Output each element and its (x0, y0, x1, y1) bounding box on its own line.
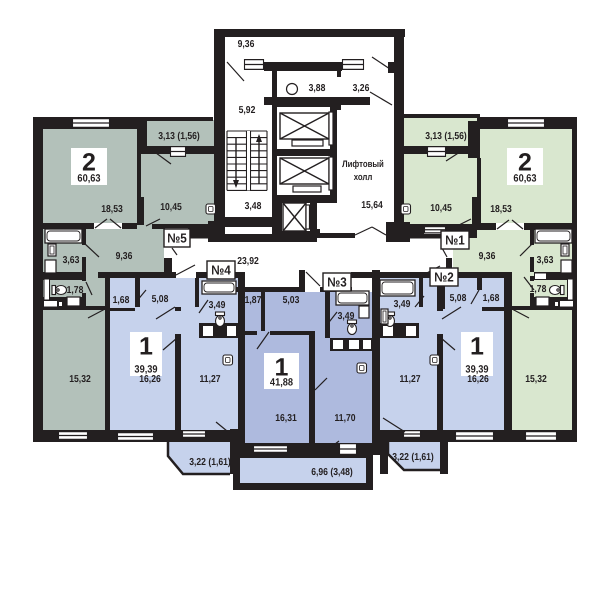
svg-text:16,31: 16,31 (275, 413, 297, 424)
svg-text:1,68: 1,68 (483, 293, 500, 304)
svg-text:3,63: 3,63 (63, 255, 80, 266)
svg-text:1: 1 (139, 333, 153, 361)
svg-text:№2: №2 (434, 270, 454, 285)
svg-text:3,13 (1,56): 3,13 (1,56) (158, 131, 200, 142)
svg-text:11,27: 11,27 (399, 374, 420, 385)
svg-text:5,92: 5,92 (239, 105, 256, 116)
svg-text:3,22 (1,61): 3,22 (1,61) (189, 457, 231, 468)
svg-text:9,36: 9,36 (479, 251, 496, 262)
svg-text:3,22 (1,61): 3,22 (1,61) (392, 452, 434, 463)
svg-text:6,96 (3,48): 6,96 (3,48) (311, 467, 353, 478)
svg-text:1,78: 1,78 (530, 284, 547, 295)
svg-text:9,36: 9,36 (116, 251, 133, 262)
svg-text:60,63: 60,63 (513, 173, 536, 185)
svg-text:№1: №1 (445, 233, 465, 248)
svg-text:1,87: 1,87 (245, 295, 262, 306)
svg-text:60,63: 60,63 (77, 173, 100, 185)
svg-text:16,26: 16,26 (467, 374, 489, 385)
svg-text:Лифтовый: Лифтовый (342, 159, 384, 170)
svg-text:5,03: 5,03 (283, 295, 300, 306)
svg-text:16,26: 16,26 (139, 374, 161, 385)
svg-text:1: 1 (470, 333, 484, 361)
svg-text:18,53: 18,53 (490, 204, 512, 215)
svg-text:№4: №4 (211, 263, 231, 278)
svg-text:11,27: 11,27 (199, 374, 220, 385)
svg-text:9,36: 9,36 (238, 39, 255, 50)
svg-text:3,88: 3,88 (309, 83, 326, 94)
svg-text:15,32: 15,32 (525, 374, 547, 385)
svg-text:10,45: 10,45 (160, 202, 182, 213)
svg-text:41,88: 41,88 (270, 377, 293, 389)
svg-text:5,08: 5,08 (152, 294, 169, 305)
svg-text:№3: №3 (327, 275, 347, 290)
svg-text:23,92: 23,92 (237, 256, 259, 267)
svg-text:3,49: 3,49 (394, 299, 411, 310)
svg-text:3,63: 3,63 (537, 255, 554, 266)
svg-text:5,08: 5,08 (450, 293, 467, 304)
svg-text:1,78: 1,78 (67, 285, 84, 296)
svg-text:11,70: 11,70 (334, 413, 355, 424)
svg-text:3,48: 3,48 (245, 201, 262, 212)
svg-text:3,49: 3,49 (209, 300, 226, 311)
svg-text:3,49: 3,49 (338, 311, 355, 322)
svg-text:1,68: 1,68 (113, 295, 130, 306)
svg-text:15,64: 15,64 (361, 200, 383, 211)
svg-text:10,45: 10,45 (430, 203, 452, 214)
svg-text:3,13 (1,56): 3,13 (1,56) (425, 131, 467, 142)
svg-text:15,32: 15,32 (69, 374, 91, 385)
svg-text:холл: холл (354, 172, 373, 183)
svg-text:18,53: 18,53 (101, 204, 123, 215)
svg-text:№5: №5 (167, 231, 187, 246)
svg-text:3,26: 3,26 (353, 83, 370, 94)
